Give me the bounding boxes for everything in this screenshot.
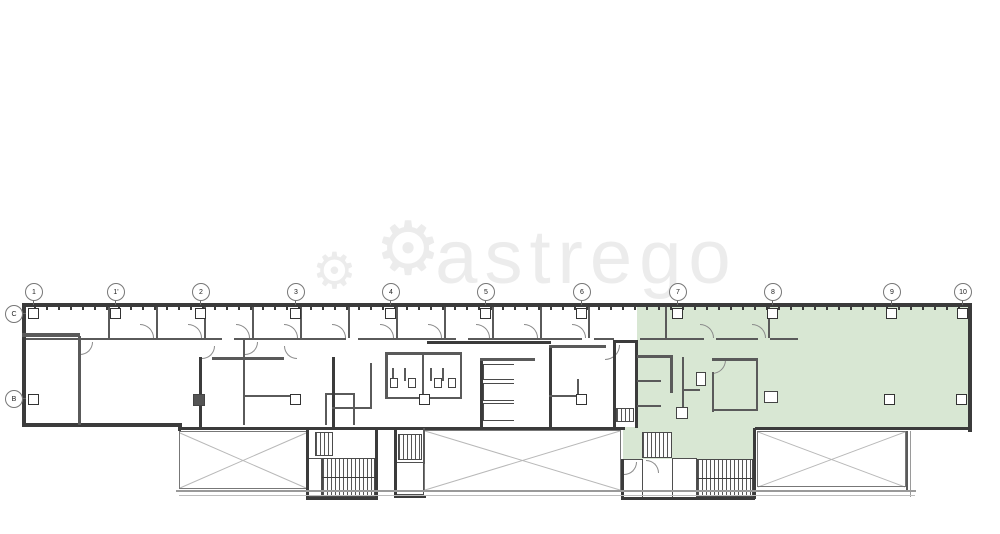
column-marker bbox=[957, 308, 968, 319]
wall-segment bbox=[637, 355, 673, 358]
wall-segment bbox=[697, 478, 753, 479]
terrace-right bbox=[757, 431, 906, 487]
wall-segment bbox=[613, 340, 638, 343]
wall-segment bbox=[252, 307, 254, 338]
wall-segment bbox=[468, 338, 582, 340]
wall-segment bbox=[179, 495, 915, 496]
wc-fixture bbox=[408, 378, 416, 388]
wc-fixture bbox=[448, 378, 456, 388]
wall-segment bbox=[322, 477, 375, 478]
fixture bbox=[764, 391, 778, 403]
wall-segment bbox=[385, 352, 388, 399]
wall-segment bbox=[156, 307, 158, 338]
wall-segment bbox=[332, 357, 335, 427]
wc-fixture bbox=[434, 378, 442, 388]
column-marker bbox=[767, 308, 778, 319]
wall-segment bbox=[460, 352, 462, 399]
column-marker bbox=[672, 308, 683, 319]
wall-segment bbox=[78, 336, 81, 425]
wall-segment bbox=[640, 338, 704, 340]
wall-segment bbox=[635, 340, 638, 428]
wall-segment bbox=[665, 307, 667, 338]
grid-bubble-9: 9 bbox=[883, 283, 901, 301]
wall-segment bbox=[353, 393, 355, 425]
wall-segment bbox=[22, 303, 972, 307]
column-marker bbox=[110, 308, 121, 319]
wall-segment bbox=[394, 428, 397, 498]
grid-bubble-8: 8 bbox=[764, 283, 782, 301]
wall-segment bbox=[613, 340, 616, 428]
wall-segment bbox=[306, 497, 378, 500]
wall-segment bbox=[712, 358, 758, 361]
wall-segment bbox=[422, 354, 424, 397]
grid-bubble-5: 5 bbox=[477, 283, 495, 301]
wall-segment bbox=[682, 389, 700, 391]
wall-segment bbox=[755, 427, 972, 430]
wall-segment bbox=[549, 345, 552, 428]
grid-bubble-6: 6 bbox=[573, 283, 591, 301]
wall-segment bbox=[594, 338, 614, 340]
stair-run bbox=[398, 434, 422, 460]
stair-run bbox=[642, 432, 672, 458]
wall-segment bbox=[22, 423, 182, 427]
wall-segment bbox=[325, 393, 327, 425]
wall-segment bbox=[442, 368, 444, 381]
wall-segment bbox=[404, 368, 406, 381]
core-cell bbox=[672, 458, 697, 498]
column-marker bbox=[576, 394, 587, 405]
column-marker bbox=[195, 308, 206, 319]
wall-segment bbox=[199, 357, 202, 427]
wall-segment bbox=[427, 341, 551, 344]
wall-segment bbox=[712, 372, 714, 412]
wall-segment bbox=[423, 428, 425, 464]
column-marker bbox=[28, 308, 39, 319]
wall-segment bbox=[396, 307, 398, 338]
column-marker bbox=[419, 394, 430, 405]
grid-bubble-C: C bbox=[5, 305, 23, 323]
wall-segment bbox=[756, 358, 758, 411]
wall-segment bbox=[26, 338, 222, 340]
wall-segment bbox=[621, 497, 755, 500]
wall-segment bbox=[22, 303, 26, 427]
grid-bubble-4: 4 bbox=[382, 283, 400, 301]
wc-fixture bbox=[390, 378, 398, 388]
fixture bbox=[676, 407, 688, 419]
grid-bubble-B: B bbox=[5, 390, 23, 408]
wall-segment bbox=[549, 345, 606, 348]
wall-segment bbox=[480, 358, 535, 361]
wall-segment bbox=[243, 395, 297, 397]
wall-segment bbox=[670, 355, 673, 393]
wall-segment bbox=[906, 431, 908, 491]
column-marker bbox=[884, 394, 895, 405]
wall-segment bbox=[212, 357, 284, 360]
elevator-shaft bbox=[483, 364, 514, 380]
column-marker bbox=[956, 394, 967, 405]
floor-plan-canvas: ⚙ ⚙ astrego 11'2345678910CB bbox=[0, 0, 1000, 534]
wall-segment bbox=[637, 380, 661, 382]
door-symbol bbox=[193, 394, 205, 406]
wall-segment bbox=[325, 393, 355, 395]
wall-segment bbox=[712, 409, 758, 411]
wall-segment bbox=[682, 357, 684, 411]
wall-segment bbox=[540, 307, 542, 338]
wall-segment bbox=[178, 427, 625, 430]
stair-run bbox=[616, 408, 634, 422]
wall-segment bbox=[444, 307, 446, 338]
wall-segment bbox=[243, 340, 245, 425]
wall-segment bbox=[22, 333, 80, 337]
wall-segment bbox=[370, 363, 372, 409]
wall-segment bbox=[358, 338, 456, 340]
wall-segment bbox=[716, 338, 758, 340]
elevator-shaft bbox=[483, 383, 514, 401]
grid-bubble-3: 3 bbox=[287, 283, 305, 301]
wall-segment bbox=[332, 407, 372, 409]
wall-segment bbox=[348, 307, 350, 338]
elevator-shaft bbox=[483, 403, 514, 421]
stair-run bbox=[315, 432, 333, 456]
wall-segment bbox=[178, 423, 181, 431]
column-marker bbox=[480, 308, 491, 319]
wall-segment bbox=[549, 395, 577, 397]
column-marker bbox=[290, 308, 301, 319]
column-marker bbox=[576, 308, 587, 319]
column-marker bbox=[28, 394, 39, 405]
column-marker bbox=[886, 308, 897, 319]
wall-segment bbox=[968, 303, 972, 432]
fixture bbox=[696, 372, 706, 386]
wall-segment bbox=[492, 307, 494, 338]
terrace-middle bbox=[424, 430, 621, 491]
grid-bubble-7: 7 bbox=[669, 283, 687, 301]
wall-segment bbox=[430, 368, 432, 381]
wall-segment bbox=[621, 459, 624, 499]
wall-segment bbox=[637, 405, 661, 407]
grid-bubble-2: 2 bbox=[192, 283, 210, 301]
grid-bubble-1': 1' bbox=[107, 283, 125, 301]
wall-segment bbox=[234, 338, 346, 340]
grid-bubble-10: 10 bbox=[954, 283, 972, 301]
grid-bubble-1: 1 bbox=[25, 283, 43, 301]
wall-segment bbox=[910, 431, 911, 497]
wall-segment bbox=[770, 338, 798, 340]
terrace-left bbox=[179, 431, 307, 489]
wall-segment bbox=[176, 490, 916, 492]
wall-segment bbox=[588, 307, 590, 338]
column-marker bbox=[385, 308, 396, 319]
wall-segment bbox=[753, 428, 756, 499]
facade-window-ticks bbox=[22, 307, 972, 310]
column-marker bbox=[290, 394, 301, 405]
